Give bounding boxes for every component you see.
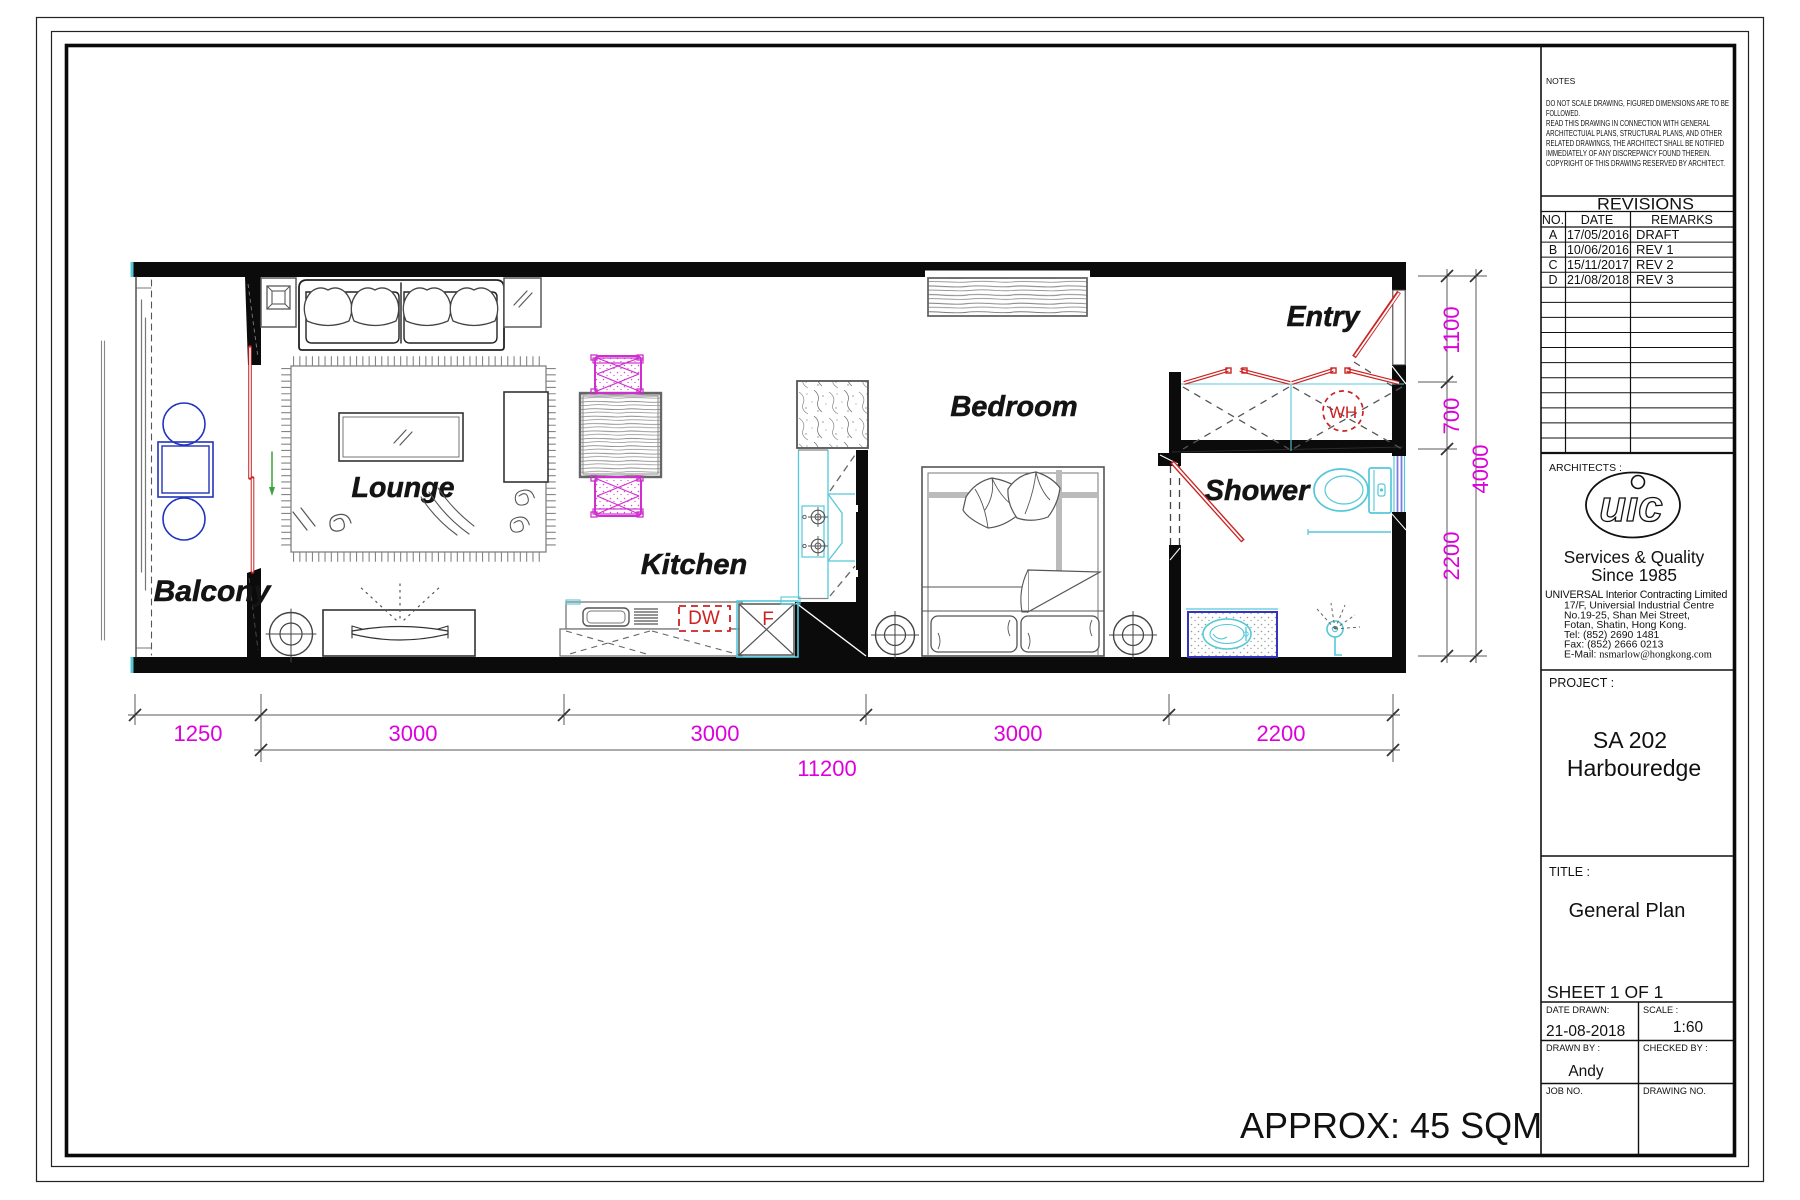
svg-text:PROJECT :: PROJECT :: [1549, 676, 1614, 690]
svg-text:1:60: 1:60: [1673, 1019, 1704, 1036]
svg-text:REV 1: REV 1: [1636, 242, 1674, 257]
svg-text:REV 3: REV 3: [1636, 272, 1674, 287]
svg-text:SCALE :: SCALE :: [1643, 1005, 1678, 1015]
svg-text:REV 2: REV 2: [1636, 257, 1674, 272]
svg-text:CHECKED BY :: CHECKED BY :: [1643, 1043, 1708, 1053]
svg-text:DRAWING NO.: DRAWING NO.: [1643, 1086, 1706, 1096]
svg-text:21-08-2018: 21-08-2018: [1546, 1023, 1625, 1040]
svg-text:DO NOT SCALE DRAWING, FIGURED: DO NOT SCALE DRAWING, FIGURED DIMENSIONS…: [1546, 99, 1729, 108]
svg-text:D: D: [1548, 273, 1557, 287]
svg-text:READ THIS DRAWING IN CONNECTIO: READ THIS DRAWING IN CONNECTION WITH GEN…: [1546, 119, 1711, 128]
svg-text:DRAWN BY :: DRAWN BY :: [1546, 1043, 1600, 1053]
svg-text:ARCHITECTS :: ARCHITECTS :: [1549, 462, 1622, 474]
svg-text:UNIVERSAL Interior Contracting: UNIVERSAL Interior Contracting Limited: [1545, 589, 1727, 601]
svg-text:REVISIONS: REVISIONS: [1597, 195, 1694, 214]
svg-text:ARCHITECTUIAL PLANS, STRUCTURA: ARCHITECTUIAL PLANS, STRUCTURAL PLANS, A…: [1546, 129, 1722, 138]
svg-text:Andy: Andy: [1568, 1063, 1604, 1080]
svg-text:Shower: Shower: [1205, 475, 1311, 507]
svg-text:NOTES: NOTES: [1546, 76, 1576, 86]
svg-text:SHEET 1 OF 1: SHEET 1 OF 1: [1547, 982, 1663, 1002]
svg-text:4000: 4000: [1468, 445, 1493, 494]
svg-text:IMMEDIATELY OF ANY DISCREPANCY: IMMEDIATELY OF ANY DISCREPANCY FOUND THE…: [1546, 149, 1711, 158]
svg-text:2200: 2200: [1257, 721, 1306, 746]
svg-text:Kitchen: Kitchen: [641, 549, 747, 581]
svg-text:1250: 1250: [174, 721, 223, 746]
svg-text:General Plan: General Plan: [1569, 900, 1686, 922]
svg-text:SA 202: SA 202: [1593, 727, 1667, 753]
svg-text:uıc: uıc: [1599, 482, 1663, 531]
svg-text:REMARKS: REMARKS: [1651, 213, 1713, 227]
svg-text:2200: 2200: [1439, 532, 1464, 581]
svg-text:TITLE :: TITLE :: [1549, 865, 1590, 879]
svg-text:1100: 1100: [1439, 306, 1464, 353]
svg-text:11200: 11200: [797, 756, 857, 781]
svg-text:10/06/2016: 10/06/2016: [1567, 242, 1629, 257]
svg-text:Services & Quality: Services & Quality: [1564, 547, 1705, 567]
svg-text:Entry: Entry: [1287, 301, 1362, 333]
svg-text:FOLLOWED.: FOLLOWED.: [1546, 109, 1580, 118]
svg-text:F: F: [762, 609, 774, 630]
svg-text:RELATED DRAWINGS, THE ARCHITEC: RELATED DRAWINGS, THE ARCHITECT SHALL BE…: [1546, 139, 1724, 148]
svg-text:3000: 3000: [994, 721, 1043, 746]
svg-text:COPYRIGHT OF THIS DRAWING RESE: COPYRIGHT OF THIS DRAWING RESERVED BY AR…: [1546, 159, 1725, 168]
svg-text:21/08/2018: 21/08/2018: [1567, 272, 1629, 287]
svg-text:DATE DRAWN:: DATE DRAWN:: [1546, 1005, 1609, 1015]
svg-text:Harbouredge: Harbouredge: [1567, 755, 1701, 781]
svg-text:Bedroom: Bedroom: [950, 391, 1077, 423]
svg-text:E-Mail: nsmarlow@hongkong.com: E-Mail: nsmarlow@hongkong.com: [1564, 650, 1712, 661]
svg-text:DRAFT: DRAFT: [1636, 227, 1679, 242]
svg-text:3000: 3000: [389, 721, 438, 746]
svg-text:Lounge: Lounge: [352, 472, 455, 504]
svg-text:WH: WH: [1329, 403, 1357, 422]
svg-text:15/11/2017: 15/11/2017: [1567, 257, 1629, 272]
svg-text:APPROX: 45 SQM: APPROX: 45 SQM: [1240, 1105, 1542, 1146]
svg-text:3000: 3000: [691, 721, 740, 746]
svg-text:DATE: DATE: [1581, 213, 1613, 227]
svg-text:JOB NO.: JOB NO.: [1546, 1086, 1583, 1096]
svg-text:DW: DW: [688, 608, 720, 629]
svg-text:Balcony: Balcony: [154, 575, 272, 608]
svg-text:B: B: [1549, 243, 1557, 257]
svg-text:NO.: NO.: [1542, 213, 1564, 227]
svg-text:C: C: [1548, 258, 1557, 272]
svg-text:700: 700: [1439, 398, 1464, 435]
svg-text:17/05/2016: 17/05/2016: [1567, 227, 1629, 242]
svg-text:A: A: [1549, 228, 1558, 242]
svg-text:Since 1985: Since 1985: [1591, 565, 1677, 585]
